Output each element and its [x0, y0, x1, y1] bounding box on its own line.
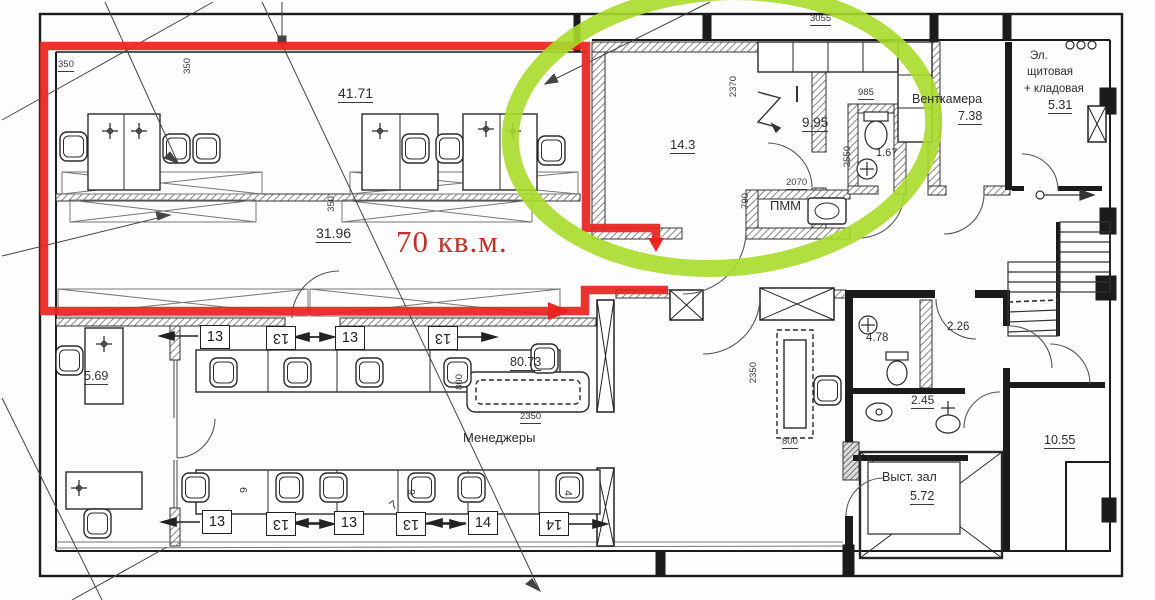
room-label-managers: Менеджеры	[463, 431, 535, 445]
dim-350-vertical-b: 350	[327, 196, 337, 212]
dim-2070: 2070	[786, 178, 807, 190]
room-area-7-38: 7.38	[958, 110, 982, 125]
room-area-41-71: 41.71	[338, 86, 373, 103]
room-area-5-31: 5.31	[1048, 99, 1072, 114]
duct-symbol	[758, 86, 797, 132]
desk-tag-13: 13	[202, 510, 232, 534]
dim-790: 790	[741, 193, 751, 209]
room-label-el-3: + кладовая	[1024, 83, 1084, 95]
dim-350-vertical-a: 350	[183, 58, 193, 74]
room-area-31-96: 31.96	[316, 226, 351, 243]
desk-tag-14: 14	[539, 512, 569, 536]
dim-350-left: 350	[58, 60, 74, 72]
dim-2370: 2370	[729, 76, 739, 97]
room-area-80-73: 80.73	[510, 356, 541, 371]
floor-plan-drawing	[0, 0, 1155, 600]
area-callout-70sqm: 70 кв.м.	[396, 226, 508, 259]
desk-tag-13: 13	[200, 325, 230, 349]
dim-800-cabinet: 800	[782, 437, 798, 449]
desk-tag-13: 13	[396, 512, 426, 536]
marker-6: 6	[237, 487, 249, 493]
room-label-pmm: ПММ	[770, 199, 801, 213]
floor-plan: 350 350 41.71 350 31.96 70 кв.м. 14.3 30…	[0, 0, 1155, 600]
room-area-5-72: 5.72	[910, 490, 934, 505]
room-area-14-3: 14.3	[670, 138, 695, 154]
desk-tag-13: 13	[266, 512, 296, 536]
dim-2350-cabinet: 2350	[749, 362, 759, 383]
room-area-2-45: 2.45	[911, 394, 934, 409]
room-area-4-78: 4.78	[866, 332, 888, 344]
desk-tag-13: 13	[266, 326, 296, 350]
room-area-1-67: 1.67	[876, 148, 897, 160]
marker-9: 9	[405, 489, 417, 495]
desk-tag-14: 14	[468, 511, 498, 535]
dim-2350-desk: 2350	[520, 412, 541, 424]
desk-tag-13: 13	[428, 326, 458, 350]
room-area-9-95: 9.95	[802, 116, 828, 132]
room-area-5-69: 5.69	[84, 370, 108, 385]
room-label-exhibition: Выст. зал	[882, 471, 937, 484]
dim-3055: 3055	[810, 14, 831, 26]
desk-tag-13: 13	[334, 511, 364, 535]
marker-4: 4	[562, 490, 574, 496]
dim-985: 985	[858, 88, 874, 100]
room-label-el-2: щитовая	[1027, 66, 1073, 78]
room-area-10-55: 10.55	[1044, 434, 1075, 449]
dim-2550: 2550	[843, 146, 853, 167]
desk-tag-13: 13	[335, 326, 365, 350]
dim-800-desk: 800	[455, 374, 465, 390]
room-label-vent: Венткамера	[912, 93, 982, 106]
room-area-2-26: 2.26	[947, 321, 969, 333]
room-label-el-1: Эл.	[1030, 50, 1048, 62]
